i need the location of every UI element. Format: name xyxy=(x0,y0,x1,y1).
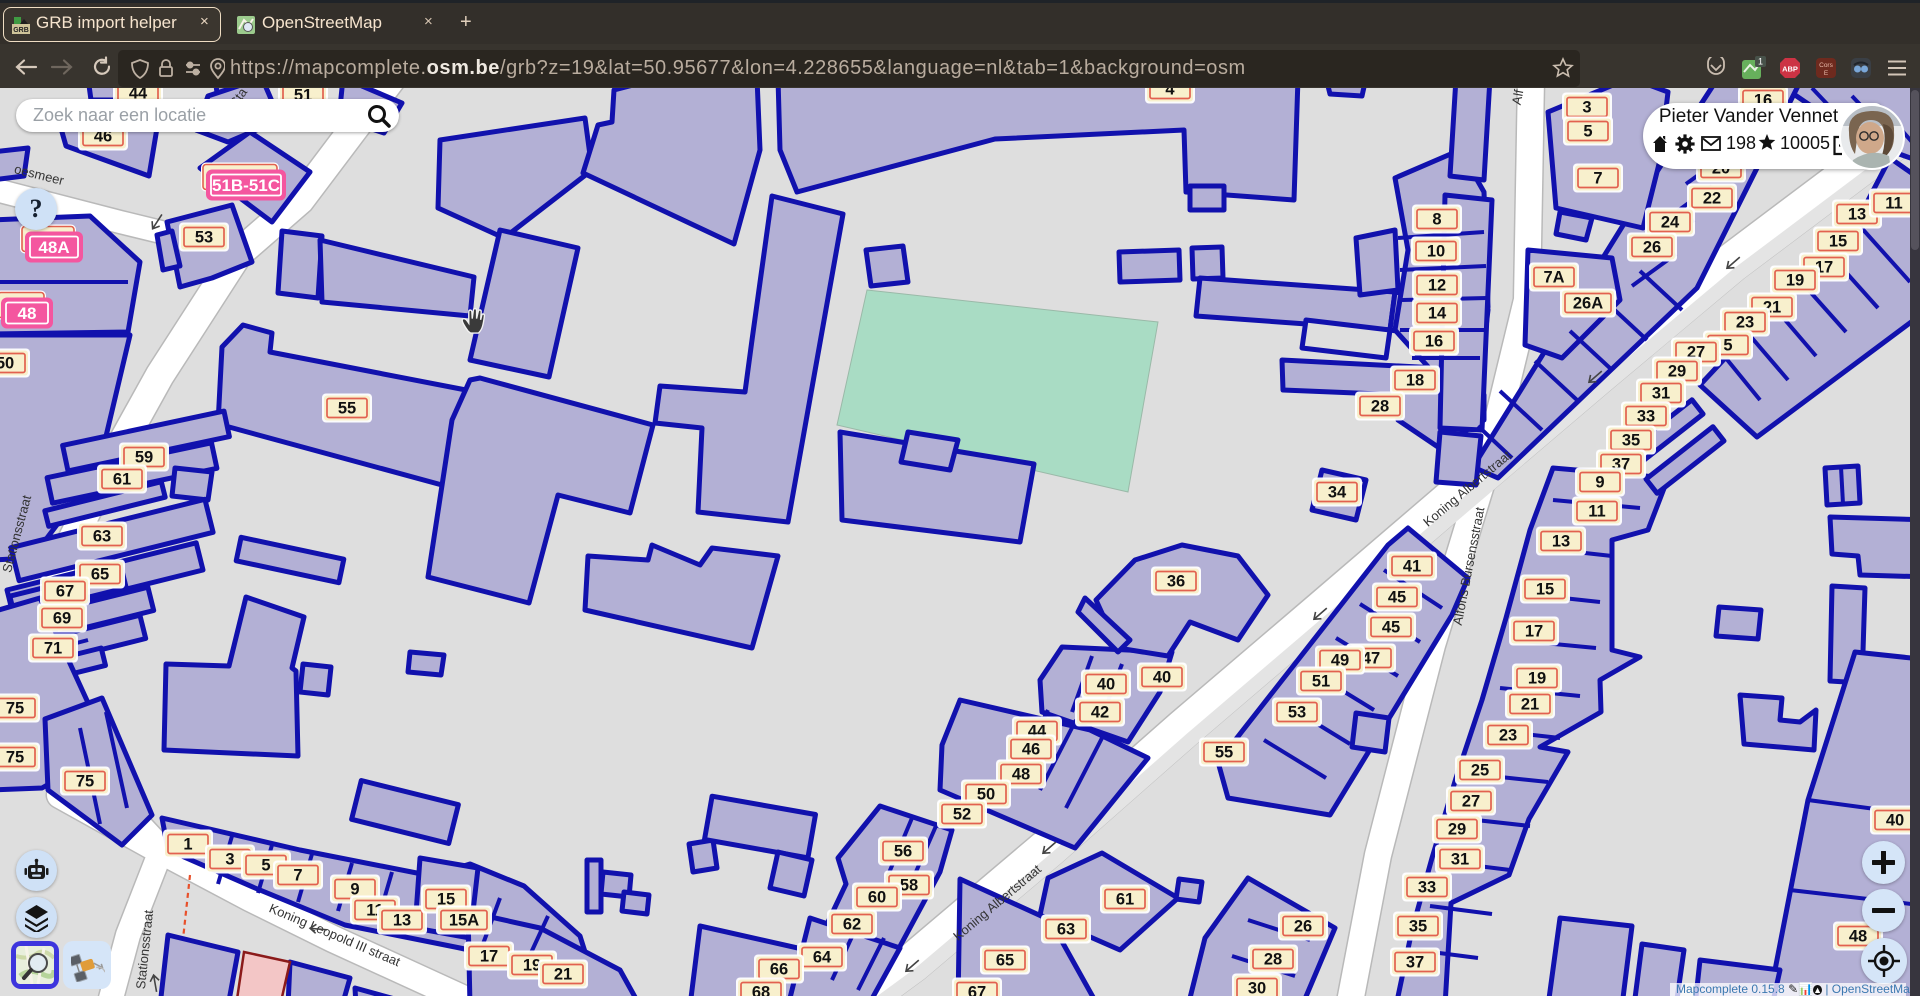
svg-text:Alf: Alf xyxy=(1509,88,1527,106)
svg-text:5: 5 xyxy=(1583,123,1592,141)
svg-text:14: 14 xyxy=(1428,305,1447,323)
svg-text:65: 65 xyxy=(996,952,1014,970)
svg-text:3: 3 xyxy=(225,851,234,869)
svg-text:4: 4 xyxy=(1165,88,1175,99)
svg-text:15: 15 xyxy=(1536,581,1554,599)
svg-text:40: 40 xyxy=(1097,676,1115,694)
svg-text:35: 35 xyxy=(1409,918,1427,936)
svg-text:19: 19 xyxy=(1528,670,1546,688)
svg-text:55: 55 xyxy=(1215,744,1233,762)
svg-text:19: 19 xyxy=(1786,272,1804,290)
svg-text:71: 71 xyxy=(44,640,62,658)
svg-text:33: 33 xyxy=(1637,408,1655,426)
svg-text:53: 53 xyxy=(1288,704,1306,722)
svg-text:16: 16 xyxy=(1425,333,1443,351)
svg-text:33: 33 xyxy=(1418,879,1436,897)
svg-text:17: 17 xyxy=(1525,623,1543,641)
svg-text:60: 60 xyxy=(868,889,886,907)
svg-text:25: 25 xyxy=(1471,762,1489,780)
svg-text:24: 24 xyxy=(1661,214,1680,232)
svg-text:51: 51 xyxy=(1312,673,1330,691)
svg-text:37: 37 xyxy=(1406,954,1424,972)
svg-text:18: 18 xyxy=(1406,372,1424,390)
svg-text:75: 75 xyxy=(76,773,94,791)
svg-text:75: 75 xyxy=(6,749,24,767)
svg-text:41: 41 xyxy=(1403,558,1421,576)
svg-text:15: 15 xyxy=(1829,233,1847,251)
svg-text:68: 68 xyxy=(752,984,770,996)
svg-text:ABP: ABP xyxy=(1782,65,1798,74)
svg-text:58: 58 xyxy=(900,877,918,895)
svg-text:61: 61 xyxy=(113,471,131,489)
svg-text:7A: 7A xyxy=(1543,269,1564,287)
svg-text:8: 8 xyxy=(1432,211,1441,229)
svg-text:Cors: Cors xyxy=(1819,62,1833,69)
svg-text:50: 50 xyxy=(0,355,14,373)
svg-text:3: 3 xyxy=(1582,99,1591,117)
svg-text:23: 23 xyxy=(1499,727,1517,745)
svg-text:1: 1 xyxy=(1758,57,1763,67)
svg-text:48A: 48A xyxy=(38,238,69,257)
svg-text:13: 13 xyxy=(1552,533,1570,551)
svg-text:46: 46 xyxy=(1022,741,1040,759)
svg-text:45: 45 xyxy=(1382,619,1400,637)
svg-text:22: 22 xyxy=(1703,190,1721,208)
svg-text:63: 63 xyxy=(1057,921,1075,939)
svg-text:40: 40 xyxy=(1153,669,1171,687)
svg-text:29: 29 xyxy=(1448,821,1466,839)
svg-text:17: 17 xyxy=(480,948,498,966)
svg-text:31: 31 xyxy=(1652,385,1670,403)
svg-text:5: 5 xyxy=(261,857,270,875)
svg-text:5: 5 xyxy=(1723,337,1732,355)
svg-text:40: 40 xyxy=(1886,812,1904,830)
svg-text:29: 29 xyxy=(1668,363,1686,381)
svg-text:34: 34 xyxy=(1328,484,1347,502)
svg-text:7: 7 xyxy=(1593,170,1602,188)
svg-text:13: 13 xyxy=(393,912,411,930)
svg-text:67: 67 xyxy=(56,583,74,601)
svg-text:48: 48 xyxy=(1849,928,1867,946)
svg-text:9: 9 xyxy=(1595,474,1604,492)
svg-text:28: 28 xyxy=(1371,398,1389,416)
svg-text:53: 53 xyxy=(195,229,213,247)
svg-text:15A: 15A xyxy=(449,912,479,930)
svg-text:198: 198 xyxy=(1726,133,1756,153)
svg-text:13: 13 xyxy=(1848,206,1866,224)
svg-text:11: 11 xyxy=(1885,195,1902,213)
svg-text:10: 10 xyxy=(1427,243,1445,261)
svg-text:61: 61 xyxy=(1116,891,1134,909)
svg-text:12: 12 xyxy=(1428,277,1446,295)
svg-text:62: 62 xyxy=(843,916,861,934)
svg-text:65: 65 xyxy=(91,566,109,584)
svg-text:26: 26 xyxy=(1643,239,1661,257)
svg-text:GRB: GRB xyxy=(13,27,29,34)
svg-text:10005: 10005 xyxy=(1780,133,1830,153)
svg-text:31: 31 xyxy=(1451,851,1469,869)
svg-text:59: 59 xyxy=(135,449,153,467)
svg-text:64: 64 xyxy=(813,949,832,967)
svg-text:36: 36 xyxy=(1167,573,1185,591)
svg-text:42: 42 xyxy=(1091,704,1109,722)
svg-text:21: 21 xyxy=(1521,696,1539,714)
svg-text:28: 28 xyxy=(1264,951,1282,969)
svg-text:E: E xyxy=(1824,70,1829,77)
svg-text:35: 35 xyxy=(1622,432,1640,450)
svg-text:11: 11 xyxy=(1588,503,1605,521)
svg-text:67: 67 xyxy=(968,984,986,996)
svg-text:48: 48 xyxy=(1012,766,1030,784)
svg-text:26A: 26A xyxy=(1573,295,1603,313)
svg-text:27: 27 xyxy=(1462,793,1480,811)
svg-text:48: 48 xyxy=(18,304,37,323)
svg-text:52: 52 xyxy=(953,806,971,824)
svg-text:69: 69 xyxy=(53,610,71,628)
svg-text:66: 66 xyxy=(770,961,788,979)
svg-text:1: 1 xyxy=(183,836,192,854)
svg-text:7: 7 xyxy=(293,867,302,885)
svg-text:21: 21 xyxy=(554,966,572,984)
svg-text:51B-51C: 51B-51C xyxy=(212,176,280,195)
svg-text:45: 45 xyxy=(1388,589,1406,607)
svg-text:63: 63 xyxy=(93,528,111,546)
svg-text:30: 30 xyxy=(1248,980,1266,996)
svg-text:56: 56 xyxy=(894,843,912,861)
svg-text:75: 75 xyxy=(6,700,24,718)
svg-text:55: 55 xyxy=(338,400,356,418)
svg-text:26: 26 xyxy=(1294,918,1312,936)
svg-text:23: 23 xyxy=(1736,314,1754,332)
